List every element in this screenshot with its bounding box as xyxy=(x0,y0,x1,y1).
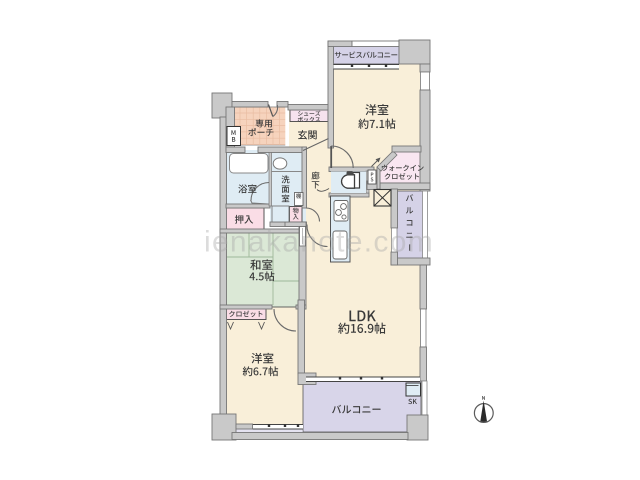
svg-text:ienakanote.com: ienakanote.com xyxy=(204,226,434,259)
